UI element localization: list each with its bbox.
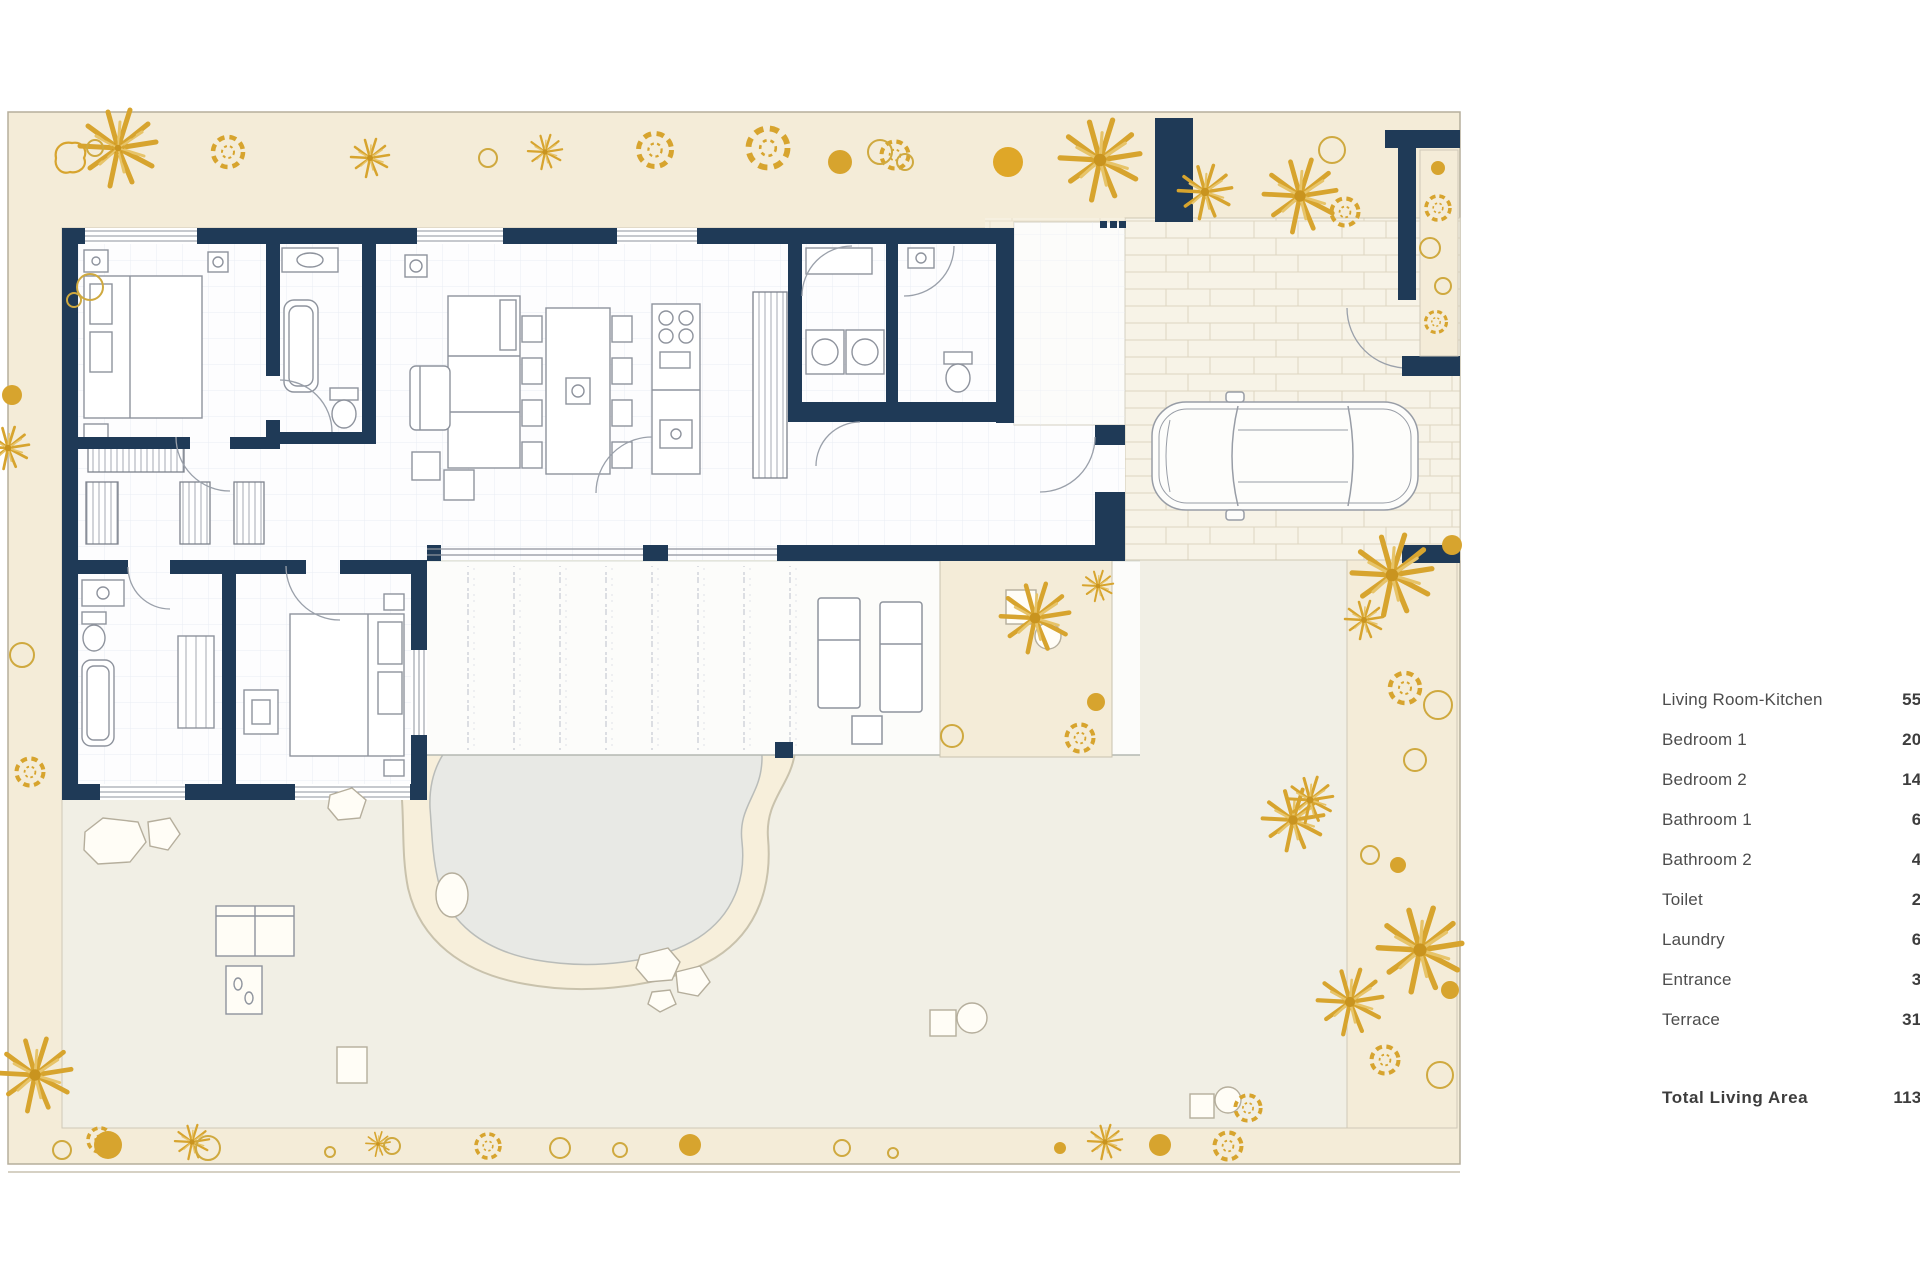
car (1152, 392, 1418, 520)
kitchen-island (652, 304, 700, 474)
legend-row: Bathroom 1 6,0 (1662, 810, 1920, 834)
legend-row: Bedroom 1 20,1 (1662, 730, 1920, 754)
legend-row: Terrace 31,9 (1662, 1010, 1920, 1034)
legend-label: Entrance (1662, 970, 1732, 990)
legend-row: Entrance 3,0 (1662, 970, 1920, 994)
legend-value: 31,9 (1840, 1010, 1920, 1030)
legend-value: 6,0 (1840, 810, 1920, 830)
legend-value: 4,6 (1840, 850, 1920, 870)
legend-label: Terrace (1662, 1010, 1720, 1030)
legend-label: Bedroom 2 (1662, 770, 1747, 790)
legend-row: Bedroom 2 14,1 (1662, 770, 1920, 794)
legend-value: 2,3 (1840, 890, 1920, 910)
legend-value: 55,1 (1840, 690, 1920, 710)
legend-row: Toilet 2,3 (1662, 890, 1920, 914)
legend-row: Living Room-Kitchen 55,1 (1662, 690, 1920, 714)
legend-label: Living Room-Kitchen (1662, 690, 1823, 710)
legend-label: Laundry (1662, 930, 1725, 950)
legend-label: Bathroom 1 (1662, 810, 1752, 830)
legend-value: 20,1 (1840, 730, 1920, 750)
legend-label: Bathroom 2 (1662, 850, 1752, 870)
legend-value: 3,0 (1840, 970, 1920, 990)
legend-value: 6,7 (1840, 930, 1920, 950)
floor-plan (0, 0, 1920, 1280)
kitchen-counter (448, 296, 520, 468)
legend-row: Laundry 6,7 (1662, 930, 1920, 954)
legend-total-label: Total Living Area (1662, 1088, 1808, 1108)
legend-row: Bathroom 2 4,6 (1662, 850, 1920, 874)
legend-total-value: 113,6 (1840, 1088, 1920, 1108)
legend-total-row: Total Living Area 113,6 (1662, 1088, 1920, 1112)
floorplan-page: { "legend": { "rows": [ {"label": "Livin… (0, 0, 1920, 1280)
legend-value: 14,1 (1840, 770, 1920, 790)
legend-label: Bedroom 1 (1662, 730, 1747, 750)
legend-label: Toilet (1662, 890, 1703, 910)
